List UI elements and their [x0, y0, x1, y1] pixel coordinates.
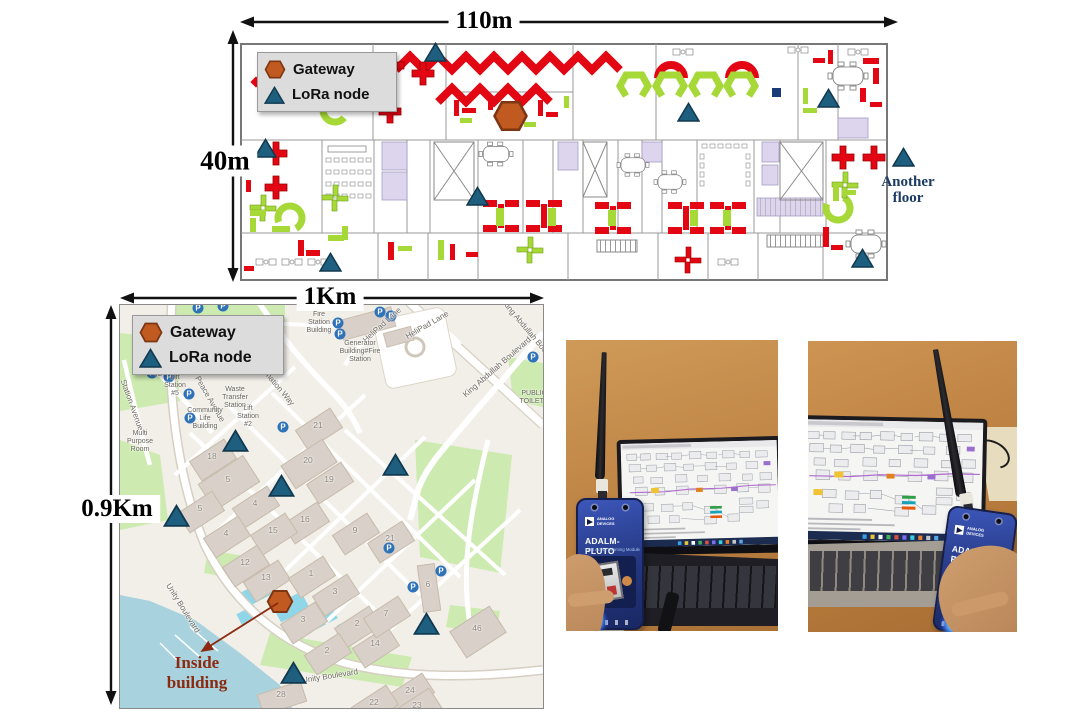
- analog-devices-logo: ANALOG DEVICES: [585, 517, 623, 526]
- parking-icon: P: [333, 318, 344, 329]
- building-number: 20: [303, 455, 312, 465]
- legend-lora-row: LoRa node: [139, 347, 277, 369]
- photo-sdr-setup-2: ANALOG DEVICES ADALM-PLUTO SDR Active Le…: [808, 341, 1017, 632]
- lora-node-marker: [382, 453, 409, 476]
- adi-logo-text: ANALOG DEVICES: [597, 517, 623, 526]
- gateway-icon: [139, 322, 163, 343]
- adi-logo-text: ANALOG DEVICES: [966, 526, 993, 539]
- building-number: 5: [198, 503, 203, 513]
- lora-legend-label: LoRa node: [292, 86, 370, 103]
- parking-icon: P: [528, 352, 539, 363]
- photo-sdr-setup-1: ANALOG DEVICES ADALM-PLUTO SDR Active Le…: [566, 340, 778, 631]
- building-number: 18: [207, 451, 216, 461]
- floorplan-height-label: 40m: [193, 146, 257, 177]
- lora-node-marker: [466, 186, 489, 206]
- building-number: 3: [333, 586, 338, 596]
- legend-gateway-row: Gateway: [264, 59, 390, 81]
- orange-dot: [622, 576, 632, 586]
- gateway-icon: [264, 60, 286, 79]
- lora-node-marker: [424, 42, 447, 62]
- rf-ports: [959, 512, 1006, 525]
- map-legend: Gateway LoRa node: [132, 315, 284, 375]
- lora-legend-label: LoRa node: [169, 349, 252, 367]
- building-number: 5: [226, 474, 231, 484]
- building-number: 22: [369, 697, 378, 707]
- adi-logo-icon: [585, 517, 594, 526]
- laptop-screen-simulink: [621, 440, 778, 548]
- poi-label: Lift Station #2: [237, 405, 259, 429]
- building-number: 13: [261, 572, 270, 582]
- analog-devices-logo: ANALOG DEVICES: [954, 525, 993, 539]
- building-number: 6: [426, 579, 431, 589]
- building-number: 14: [370, 638, 379, 648]
- building-number: 24: [405, 685, 414, 695]
- building-number: 19: [324, 474, 333, 484]
- lora-node-marker: [163, 504, 190, 527]
- rf-ports: [588, 504, 632, 511]
- parking-icon: P: [335, 329, 346, 340]
- poi-label: Multi Purpose Room: [127, 430, 153, 454]
- poi-label: Community Life Building: [187, 407, 222, 431]
- lora-node-marker: [413, 612, 440, 635]
- building-number: 23: [412, 700, 421, 708]
- adi-logo-icon: [954, 525, 964, 535]
- building-number: 9: [353, 525, 358, 535]
- parking-icon: P: [278, 422, 289, 433]
- poi-label: Generator Building#Fire Station: [340, 340, 381, 364]
- building-number: 4: [253, 498, 258, 508]
- gateway-marker: [492, 100, 529, 132]
- map-width-label: 1Km: [297, 283, 364, 311]
- building-number: 21: [313, 420, 322, 430]
- lora-node-marker: [254, 138, 277, 158]
- figure-canvas: 110m 40m 1Km 0.9Km: [0, 0, 1080, 720]
- lora-node-marker: [851, 248, 874, 268]
- lora-node-marker: [817, 88, 840, 108]
- map-height-label: 0.9Km: [74, 495, 160, 523]
- floorplan-panel: Gateway LoRa node Another floor: [238, 30, 950, 288]
- gateway-legend-label: Gateway: [293, 61, 355, 78]
- poi-label: PUBLIC TOILETS: [519, 390, 543, 406]
- parking-icon: P: [384, 543, 395, 554]
- building-number: 21: [385, 533, 394, 543]
- lora-node-marker: [677, 102, 700, 122]
- lora-node-marker: [268, 474, 295, 497]
- building-number: 2: [325, 645, 330, 655]
- legend-lora-row: LoRa node: [264, 84, 390, 106]
- floorplan-width-label: 110m: [449, 7, 520, 35]
- floorplan-legend: Gateway LoRa node: [257, 52, 397, 112]
- gateway-legend-label: Gateway: [170, 324, 236, 342]
- inside-building-label: Inside building: [142, 653, 252, 693]
- parking-icon: P: [436, 566, 447, 577]
- building-number: 2: [355, 618, 360, 628]
- parking-icon: P: [408, 582, 419, 593]
- poi-label: Fire Station Building: [307, 311, 332, 335]
- lora-node-marker: [222, 429, 249, 452]
- lora-node-marker: [892, 147, 915, 167]
- building-number: 15: [268, 525, 277, 535]
- floorplan-width-arrow: [238, 14, 900, 30]
- building-number: 1: [309, 568, 314, 578]
- device-title: ADALM-PLUTO: [585, 536, 642, 556]
- building-number: 7: [384, 608, 389, 618]
- device-subtitle: SDR Active Learning Module: [585, 547, 640, 552]
- lora-node-marker: [319, 252, 342, 272]
- lora-node-icon: [264, 86, 285, 104]
- building-number: 3: [301, 614, 306, 624]
- another-floor-label: Another floor: [874, 174, 942, 206]
- building-number: 28: [276, 689, 285, 699]
- building-number: 46: [472, 623, 481, 633]
- building-number: 16: [300, 514, 309, 524]
- building-number: 4: [224, 528, 229, 538]
- building-number: 12: [240, 557, 249, 567]
- antenna: [595, 352, 609, 480]
- campus-map-panel: 1855212019441615921121313322147646242328…: [120, 305, 543, 708]
- lora-node-icon: [139, 348, 162, 368]
- legend-gateway-row: Gateway: [139, 322, 277, 344]
